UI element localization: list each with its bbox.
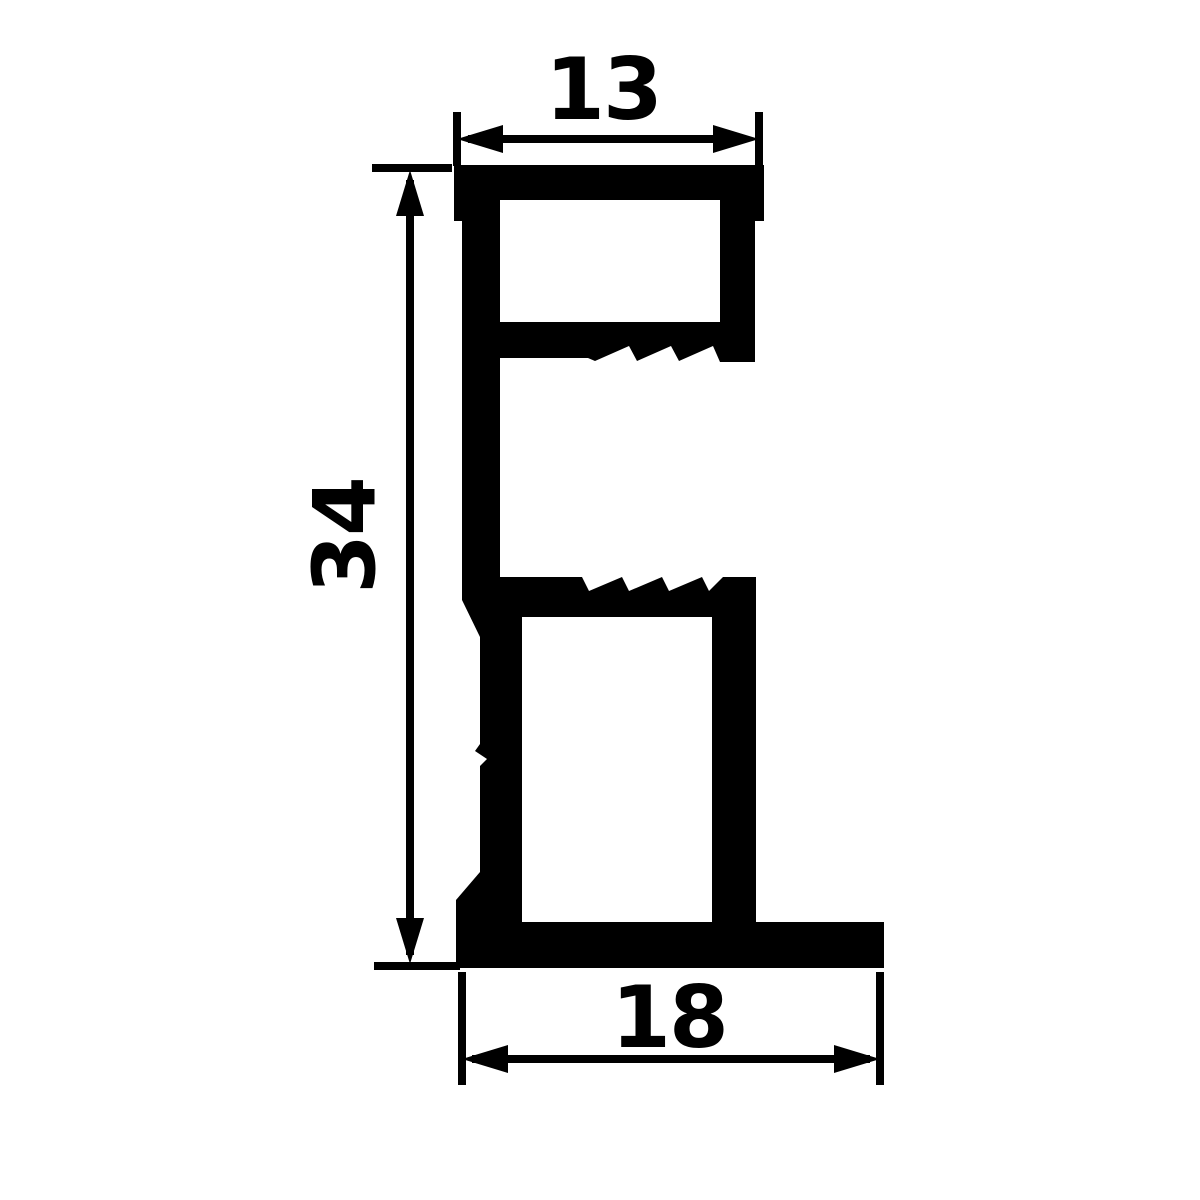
drawing-canvas: 13 34 18 bbox=[0, 0, 1200, 1200]
dimension-bottom-value: 18 bbox=[611, 968, 727, 1068]
profile-drawing: 13 34 18 bbox=[0, 0, 1200, 1200]
dimension-top-value: 13 bbox=[545, 40, 661, 140]
dimension-left-value: 34 bbox=[295, 478, 395, 594]
